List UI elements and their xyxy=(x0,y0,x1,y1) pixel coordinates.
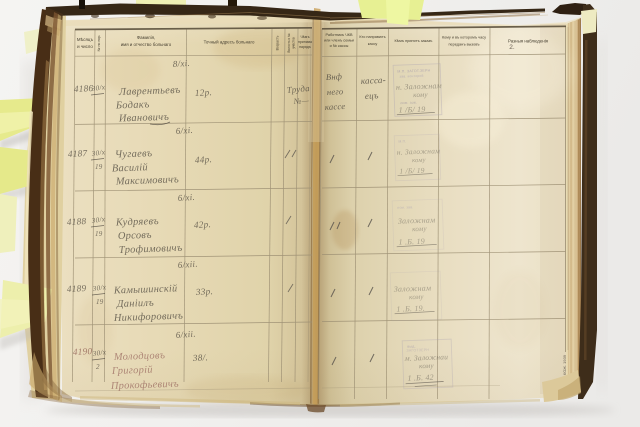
svg-text:пом. зав.: пом. зав. xyxy=(397,205,413,210)
svg-text:Максимовичъ: Максимовичъ xyxy=(115,174,180,187)
svg-text:М.П.: М.П. xyxy=(398,139,406,143)
svg-text:Кому и въ которомъ часу: Кому и въ которомъ часу xyxy=(442,36,486,40)
svg-text:участка: участка xyxy=(292,37,296,49)
svg-text:Бодакъ: Бодакъ xyxy=(115,99,150,111)
svg-text:Орсовъ: Орсовъ xyxy=(118,230,152,242)
svg-text:кому: кому xyxy=(412,225,428,234)
svg-text:Возрастъ: Возрастъ xyxy=(276,36,280,51)
svg-text:кассе: кассе xyxy=(325,101,346,112)
svg-text:19: 19 xyxy=(95,163,103,171)
svg-text:6/хіі.: 6/хіі. xyxy=(177,259,198,270)
svg-text:Мѣсяцъ: Мѣсяцъ xyxy=(77,37,93,42)
svg-text:4187: 4187 xyxy=(68,148,88,159)
svg-text:или членъ семьи: или членъ семьи xyxy=(324,39,354,43)
svg-text:Даніилъ: Даніилъ xyxy=(116,298,155,310)
svg-text:Чугаевъ: Чугаевъ xyxy=(115,148,153,160)
svg-text:Кѣмъ принятъ заказъ: Кѣмъ принятъ заказъ xyxy=(395,39,434,43)
svg-text:Труда: Труда xyxy=(286,83,310,95)
svg-text:Фамилія,: Фамилія, xyxy=(137,35,155,40)
svg-text:кому: кому xyxy=(413,91,429,100)
svg-text:6/хі.: 6/хі. xyxy=(175,125,193,136)
svg-text:кому: кому xyxy=(409,293,425,302)
svg-text:Трофимовичъ: Трофимовичъ xyxy=(119,243,183,256)
svg-text:33р.: 33р. xyxy=(195,286,214,297)
svg-text:44р.: 44р. xyxy=(195,154,213,165)
svg-text:Волость и №: Волость и № xyxy=(287,33,291,53)
svg-text:Чѣмъ: Чѣмъ xyxy=(300,35,310,39)
svg-text:кассу: кассу xyxy=(368,42,378,46)
svg-text:6/хі.: 6/хі. xyxy=(177,192,195,203)
svg-text:и число: и число xyxy=(77,44,93,49)
svg-text:19: 19 xyxy=(96,298,104,306)
svg-text:4190: 4190 xyxy=(73,346,93,357)
svg-text:42р.: 42р. xyxy=(194,219,212,230)
svg-text:Кудряевъ: Кудряевъ xyxy=(115,216,160,229)
svg-text:№ по пор.: № по пор. xyxy=(97,35,101,52)
svg-text:4188: 4188 xyxy=(67,216,87,227)
svg-text:4189: 4189 xyxy=(67,283,87,294)
svg-text:Камышинскій: Камышинскій xyxy=(113,283,178,296)
svg-text:№—: №— xyxy=(292,96,310,106)
svg-text:Ивановичъ: Ивановичъ xyxy=(118,112,170,125)
svg-text:зав. конторой: зав. конторой xyxy=(399,74,423,79)
svg-text:нарядъ: нарядъ xyxy=(299,45,312,49)
svg-text:12р.: 12р. xyxy=(195,87,213,98)
svg-text:Точный адресъ больнаго: Точный адресъ больнаго xyxy=(204,40,255,45)
svg-text:принима: принима xyxy=(298,40,312,44)
svg-text:1 .Б. 42: 1 .Б. 42 xyxy=(407,373,434,383)
svg-text:Молодцовъ: Молодцовъ xyxy=(113,350,166,363)
svg-text:19: 19 xyxy=(95,230,103,238)
svg-text:2.: 2. xyxy=(509,44,515,51)
svg-text:Лаврентьевъ: Лаврентьевъ xyxy=(118,85,181,98)
svg-text:38/.: 38/. xyxy=(192,352,209,363)
svg-text:ЗАГОТЗЕРН: ЗАГОТЗЕРН xyxy=(406,348,429,353)
svg-text:8/хі.: 8/хі. xyxy=(172,58,190,69)
svg-text:и № кассы: и № кассы xyxy=(330,44,349,48)
svg-text:КОЖ. 1939: КОЖ. 1939 xyxy=(562,354,567,375)
svg-text:имя и отчество больнаго: имя и отчество больнаго xyxy=(121,42,172,47)
svg-text:Кто направилъ: Кто направилъ xyxy=(359,35,386,39)
svg-text:переданъ вызовъ: переданъ вызовъ xyxy=(449,43,481,47)
svg-text:н. Заложнам: н. Заложнам xyxy=(397,146,441,157)
svg-text:2: 2 xyxy=(96,363,100,371)
svg-text:касса-: касса- xyxy=(361,75,386,86)
svg-text:Василій: Василій xyxy=(112,162,149,174)
svg-text:кому: кому xyxy=(412,157,426,164)
svg-text:кому: кому xyxy=(419,362,435,371)
svg-text:Григорій: Григорій xyxy=(111,365,154,377)
svg-text:него: него xyxy=(327,86,345,97)
svg-text:Разныя наблюденія: Разныя наблюденія xyxy=(508,39,549,44)
svg-text:Работникъ ЧКВ: Работникъ ЧКВ xyxy=(325,33,353,37)
svg-text:ецъ: ецъ xyxy=(365,90,379,101)
svg-text:Внф: Внф xyxy=(326,71,343,82)
svg-text:6/хіі.: 6/хіі. xyxy=(175,329,196,340)
